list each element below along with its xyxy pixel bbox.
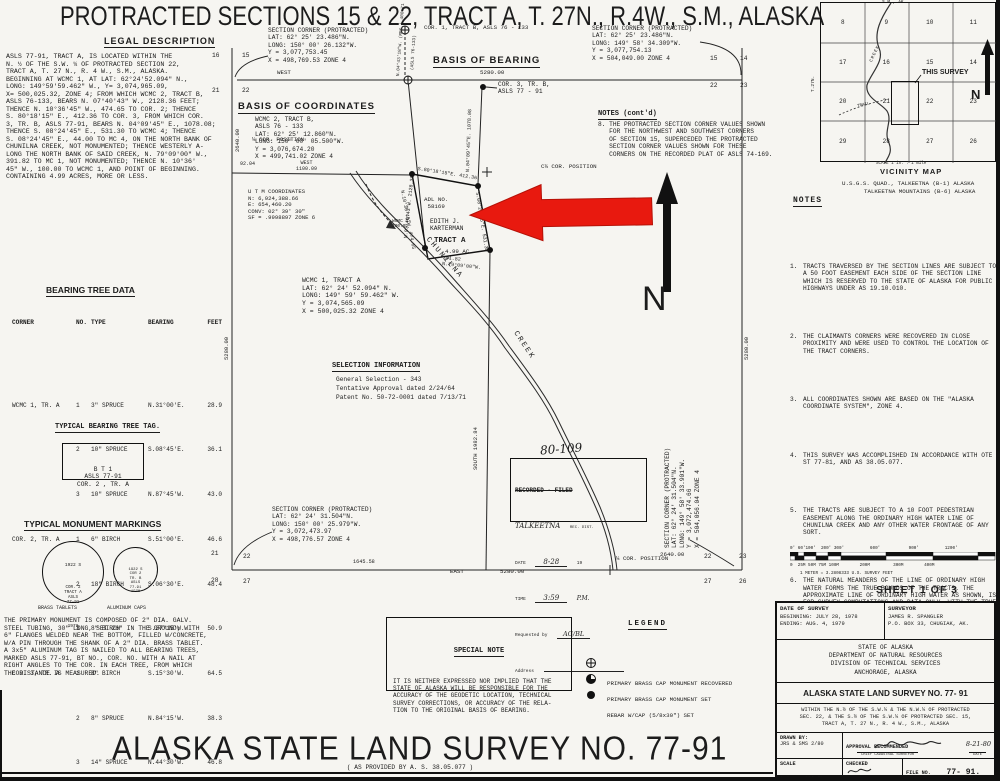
bearing-tree-header-row: CORNER NO. TYPE BEARING FEET — [12, 319, 222, 328]
selection-info-heading: SELECTION INFORMATION — [332, 362, 420, 372]
west-1100-label: WEST 1100.09 — [296, 161, 317, 173]
dist-5280-left-vert: 5280.00 — [224, 337, 231, 360]
alum-lines: 1922 S COR 2 TR. B ASLS 77-91 1978 — [114, 568, 157, 594]
note-text: THIS SURVEY WAS ACCOMPLISHED IN ACCORDAN… — [803, 452, 997, 467]
col-no: NO. — [76, 319, 91, 328]
cell-type: 8" SPRUCE — [91, 715, 148, 724]
cell-feet: 43.0 — [198, 491, 222, 500]
legal-description-body: ASLS 77-91, TRACT A, IS LOCATED WITHIN T… — [6, 53, 224, 181]
tb-date-heading: DATE OF SURVEY — [780, 605, 881, 612]
north-arrow-icon — [656, 172, 678, 292]
cell-type: 3" SPRUCE — [91, 402, 148, 411]
north-letter: N — [642, 280, 667, 319]
sec-num: 26 — [739, 578, 746, 585]
sec-num: 27 — [243, 578, 250, 585]
vicinity-section-number: 9 — [865, 3, 909, 43]
dist-5280-top: 5280.00 — [480, 70, 504, 77]
tb-checked-cell: CHECKED — [843, 759, 903, 775]
quarter-corner-left: ¼ COR. POSITION — [252, 137, 304, 144]
scalebar-feet-labels: 0' 60'100' 200' 300' 600' 900' 1200' — [790, 546, 958, 551]
vicinity-section-number: 20 — [821, 82, 865, 122]
vicinity-scale-note: SCALE 1 in. : 1 mile — [876, 162, 926, 166]
sheet-border-bottom — [0, 777, 1000, 781]
stamp-time: 3:59 — [535, 594, 567, 603]
vicinity-section-number: 27 — [908, 122, 952, 162]
brass-cap-set-icon — [475, 183, 481, 189]
cell-bearing: S.08°45'E. — [148, 446, 198, 455]
notes-heading: NOTES — [793, 196, 822, 207]
usgs-quad-line2: TALKEETNA MOUNTAINS (B-6) ALASKA — [864, 189, 975, 196]
note-number: 3. — [790, 396, 803, 411]
tb-date-cell: DATE OF SURVEY BEGINNING: JULY 28, 1978 … — [777, 603, 885, 639]
note-text: THE CLAIMANTS CORNERS WERE RECOVERED IN … — [803, 333, 997, 355]
sheet-main-title: ALASKA STATE LAND SURVEY NO. 77-91 — [112, 731, 708, 768]
monument-markings-heading: TYPICAL MONUMENT MARKINGS — [24, 519, 161, 531]
cell-no: 2 — [76, 715, 91, 724]
dist-92: 92.04 — [240, 162, 255, 168]
sec-num: 23 — [740, 82, 747, 89]
sec-num: 21 — [212, 87, 219, 94]
tree-tag-heading: TYPICAL BEARING TREE TAG. — [55, 423, 160, 433]
south-line-label: SOUTH 1982.84 — [473, 427, 480, 470]
sec-num: 16 — [212, 52, 219, 59]
tb-agency: STATE OF ALASKA DEPARTMENT OF NATURAL RE… — [777, 644, 994, 677]
tb-drawn-cell: DRAWN BY: JRS & SMS 2/80 — [777, 733, 843, 758]
claimant-name: EDITH J. KARTERMAN — [430, 218, 463, 233]
cell-no: 3 — [76, 759, 91, 768]
utm-coordinates-block: U T M COORDINATES N: 6,924,388.66 E: 654… — [248, 189, 315, 222]
tb-scale-row: SCALE 1 in. = 300 ft. CHECKED FILE NO. 7… — [777, 759, 994, 775]
cell-corner: WCMC 1, TR. A — [12, 402, 76, 411]
this-survey-label: THIS SURVEY — [922, 69, 969, 76]
section-corner-sw: SECTION CORNER (PROTRACTED) LAT: 62° 24'… — [272, 506, 372, 543]
section-corner-se: SECTION CORNER (PROTRACTED) LAT: 62° 24'… — [664, 428, 701, 548]
sec-num: 15 — [710, 55, 717, 62]
cell-no: 1 — [76, 402, 91, 411]
note-item: 2. THE CLAIMANTS CORNERS WERE RECOVERED … — [790, 333, 997, 355]
stamp-pm: P.M. — [577, 595, 590, 602]
vicinity-caption: VICINITY MAP — [880, 167, 942, 176]
sheet-number: SHEET 1 OF 3 — [876, 584, 958, 596]
sec-num: 15 — [242, 52, 249, 59]
col-feet: FEET — [198, 319, 222, 328]
dist-2640-se: 2640.00 — [660, 552, 684, 559]
tb-surveyor-values: JAMES R. SPANGLER P.O. BOX 33, CHUGIAK, … — [888, 614, 991, 628]
tb-scale-cell: SCALE 1 in. = 300 ft. — [777, 759, 843, 775]
tb-survey-title: ALASKA STATE LAND SURVEY NO. 77- 91 — [803, 689, 968, 698]
township-label: T.27N. — [811, 76, 816, 92]
tb-agency-row: STATE OF ALASKA DEPARTMENT OF NATURAL RE… — [777, 640, 994, 683]
aluminum-cap-icon: 1922 S COR 2 TR. B ASLS 77-91 1978 — [113, 547, 158, 592]
cell-bearing: N.31°00'E. — [148, 402, 198, 411]
vicinity-section-number: 29 — [821, 122, 865, 162]
note-number: 2. — [790, 333, 803, 355]
vicinity-north-letter: N — [971, 87, 980, 102]
col-bearing: BEARING — [148, 319, 198, 328]
sec-num: 14 — [740, 55, 747, 62]
dist-2640-left: 2640.00 — [235, 129, 242, 152]
legal-description-heading: LEGAL DESCRIPTION — [104, 36, 215, 48]
recording-stamp: RECORDED - FILED TALKEETNA REC. DIST. DA… — [510, 458, 647, 522]
brass-cap-set-icon — [480, 84, 486, 90]
sec-num: 22 — [704, 553, 711, 560]
cell-bearing: N.87°45'W. — [148, 491, 198, 500]
tb-surveyor-cell: SURVEYOR JAMES R. SPANGLER P.O. BOX 33, … — [885, 603, 994, 639]
vicinity-section-number: 11 — [952, 3, 996, 43]
sec-num: 23 — [739, 553, 746, 560]
usgs-quad-line1: U.S.G.S. QUAD., TALKEETNA (B-1) ALASKA — [842, 181, 974, 188]
note-number: 4. — [790, 452, 803, 467]
scalebar-caption: 1 METER = 3.2808333 U.S. SURVEY FEET — [800, 571, 893, 576]
col-type: TYPE — [91, 319, 148, 328]
stamp-office-suffix: REC. DIST. — [570, 526, 594, 530]
aluminum-caps-label: ALUMINUM CAPS — [107, 606, 146, 612]
note-item: 3. ALL COORDINATES SHOWN ARE BASED ON TH… — [790, 396, 997, 411]
note-text: ALL COORDINATES SHOWN ARE BASED ON THE "… — [803, 396, 997, 411]
cell-corner — [12, 715, 76, 724]
note-number: 1. — [790, 263, 803, 292]
vicinity-map: 891011171615142021222329282726 THIS SURV… — [820, 2, 996, 162]
basis-of-bearing-heading: BASIS OF BEARING — [433, 55, 540, 68]
legend-heading: LEGEND — [628, 620, 667, 630]
note-number: 5. — [790, 507, 803, 536]
cell-feet: 46.6 — [198, 536, 222, 545]
recording-number: 80-109 — [540, 441, 583, 458]
tree-tag-text: B T 1 ASLS 77-91 COR. 2 , TR. A — [63, 466, 143, 488]
tb-approval-date: 8-21-80 — [966, 740, 991, 748]
tb-date-values: BEGINNING: JULY 28, 1978 ENDING: AUG. 4,… — [780, 614, 881, 628]
cell-bearing: N.84°15'W. — [148, 715, 198, 724]
tb-approval-row: DRAWN BY: JRS & SMS 2/80 APPROVAL RECOMM… — [777, 733, 994, 759]
footer-rule — [0, 772, 773, 774]
rebar-set-icon — [585, 689, 597, 701]
sec-num: 22 — [243, 553, 250, 560]
selection-info-body: General Selection - 343 Tentative Approv… — [336, 375, 466, 402]
cell-bearing: S.51°00'E. — [148, 536, 198, 545]
cell-corner — [12, 759, 76, 768]
tb-within-row: WITHIN THE N.½ OF THE S.W.¼ & THE N.W.¼ … — [777, 704, 994, 733]
cor1-label: COR. 1, TRACT B, ASLS 76 - 133 — [424, 25, 528, 32]
tb-approval-cell: APPROVAL RECOMMENDED 8-21-80 CHIEF CADAS… — [843, 733, 994, 758]
tb-drawn-value: JRS & SMS 2/80 — [780, 741, 839, 747]
wcmc1-coordinate-block: WCMC 1, TRACT A LAT: 62° 24' 52.094" N. … — [302, 277, 400, 316]
table-row: WCMC 1, TR. A 1 3" SPRUCE N.31°00'E. 28.… — [12, 402, 222, 411]
sec-num: 22 — [710, 82, 717, 89]
tb-surveyor-heading: SURVEYOR — [888, 605, 991, 612]
vicinity-section-number: 15 — [908, 43, 952, 83]
tb-chief-label: CHIEF CADASTRAL SURVEYOR — [857, 752, 918, 757]
stamp-office: TALKEETNA — [515, 522, 560, 530]
section-corner-nw: SECTION CORNER (PROTRACTED) LAT: 62° 25'… — [268, 27, 368, 64]
scalebar — [790, 552, 996, 562]
cell-feet: 38.3 — [198, 715, 222, 724]
tree-tag-box: B T 1 ASLS 77-91 COR. 2 , TR. A — [62, 443, 144, 480]
stamp-year: 19 — [577, 561, 582, 566]
cor3-trb-label: COR. 3, TR. B, ASLS 77 - 91 — [498, 81, 550, 96]
tb-file-cell: FILE NO. 77- 91. — [903, 759, 994, 775]
sec-num: 28 — [211, 577, 218, 584]
sec-num: 21 — [211, 550, 218, 557]
note-item: 5. THE TRACTS ARE SUBJECT TO A 10 FOOT P… — [790, 507, 997, 536]
brass-cap-recovered-icon — [404, 76, 412, 84]
west-label-top: WEST — [277, 70, 291, 77]
stamp-date-label: DATE — [515, 561, 526, 566]
survey-plat-sheet: PROTRACTED SECTIONS 15 & 22, TRACT A, T.… — [0, 0, 1000, 781]
vicinity-section-number: 28 — [865, 122, 909, 162]
sheet-border-left — [0, 690, 2, 781]
brass-tablet-icon: 1922 S COR. 2 TRACT A ASLS 77-91 1978 — [42, 541, 104, 603]
tb-scale-label: SCALE — [780, 761, 839, 767]
legend-item: REBAR W/CAP (5/8x30") SET — [585, 668, 694, 722]
special-note-heading: SPECIAL NOTE — [454, 647, 504, 657]
checked-initials — [847, 767, 873, 775]
table-row: 2 8" SPRUCE N.84°15'W. 38.3 — [12, 715, 222, 724]
special-note-box: SPECIAL NOTE IT IS NEITHER EXPRESSED NOR… — [386, 617, 572, 691]
this-survey-rect — [891, 81, 919, 125]
signature — [873, 739, 943, 751]
col-corner: CORNER — [12, 319, 76, 328]
brass-tablets-label: BRASS TABLETS — [38, 606, 77, 612]
note-text: THE TRACTS ARE SUBJECT TO A 10 FOOT PEDE… — [803, 507, 997, 536]
vicinity-section-number: 10 — [908, 3, 952, 43]
tb-file-no: 77- 91. — [947, 768, 981, 777]
note-text: TRACTS TRAVERSED BY THE SECTION LINES AR… — [803, 263, 997, 292]
sec-num: 27 — [704, 578, 711, 585]
special-note-body: IT IS NEITHER EXPRESSED NOR IMPLIED THAT… — [393, 678, 565, 714]
brass-mid: COR. 2 TRACT A ASLS 77-91 — [43, 586, 103, 605]
notes-contd-body: 8. THE PROTRACTED SECTION CORNER VALUES … — [598, 121, 773, 158]
title-block: DATE OF SURVEY BEGINNING: JULY 28, 1978 … — [775, 601, 996, 777]
scalebar-meter-labels: 0 25M 50M 75M 100M 200M 300M 400M — [790, 563, 934, 568]
vicinity-section-number: 14 — [952, 43, 996, 83]
brass-top: 1922 S — [43, 563, 103, 568]
vicinity-section-number: 8 — [821, 3, 865, 43]
vicinity-section-number: 26 — [952, 122, 996, 162]
note-item: 1. TRACTS TRAVERSED BY THE SECTION LINES… — [790, 263, 997, 292]
legend-label: REBAR W/CAP (5/8x30") SET — [607, 712, 694, 719]
quarter-corner-center: C¼ COR. POSITION — [541, 164, 597, 171]
stamp-date: 8-28 — [535, 558, 567, 567]
tract-a-label: TRACT A — [434, 237, 466, 245]
tb-file-label: FILE NO. — [906, 770, 931, 776]
note-item: 4. THIS SURVEY WAS ACCOMPLISHED IN ACCOR… — [790, 452, 997, 467]
tb-survey-title-row: ALASKA STATE LAND SURVEY NO. 77- 91 — [777, 683, 994, 704]
cell-feet: 28.9 — [198, 402, 222, 411]
basis-of-coordinates-heading: BASIS OF COORDINATES — [238, 101, 375, 114]
east-label: EAST — [450, 569, 464, 576]
stamp-title: RECORDED - FILED — [515, 487, 573, 494]
adl-number: ADL NO. 58169 — [424, 197, 448, 211]
stamp-time-label: TIME — [515, 597, 526, 602]
sec-num: 22 — [242, 87, 249, 94]
cell-feet: 36.1 — [198, 446, 222, 455]
section-corner-ne: SECTION CORNER (PROTRACTED) LAT: 62° 25'… — [592, 25, 692, 62]
sheet-main-subtitle: ( AS PROVIDED BY A. S. 38.05.077 ) — [290, 764, 530, 771]
dist-5280-right-vert: 5280.00 — [744, 337, 751, 360]
sheet-border-right — [996, 0, 1000, 781]
notes-contd-heading: NOTES (cont'd) — [598, 110, 657, 120]
tb-within: WITHIN THE N.½ OF THE S.W.¼ & THE N.W.¼ … — [777, 707, 994, 728]
dist-1645: 1645.58 — [353, 559, 375, 566]
monument-description: THE PRIMARY MONUMENT IS COMPOSED OF 2" D… — [4, 617, 220, 677]
bearing-tree-heading: BEARING TREE DATA — [46, 285, 135, 297]
vicinity-section-number: 17 — [821, 43, 865, 83]
tb-survey-dates-row: DATE OF SURVEY BEGINNING: JULY 28, 1978 … — [777, 603, 994, 640]
tb-date-label: DATE — [969, 752, 986, 757]
bearing-tree-table: CORNER NO. TYPE BEARING FEET WCMC 1, TR.… — [12, 301, 222, 781]
